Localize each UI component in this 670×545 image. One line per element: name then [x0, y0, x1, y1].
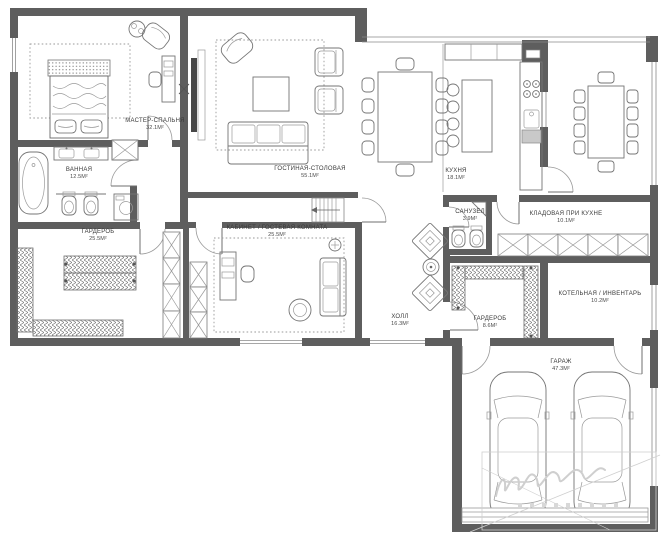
study-furniture	[214, 238, 346, 332]
wardrobe-hall-racks	[452, 266, 538, 338]
dining-table-chairs	[362, 58, 448, 176]
master-bedroom-furniture	[30, 20, 189, 138]
closet-strip-left	[163, 232, 180, 338]
garage-contents	[462, 372, 648, 522]
hall-furniture	[412, 223, 449, 312]
bathroom-fixtures	[19, 140, 138, 220]
stairs	[311, 198, 344, 222]
living-room-furniture	[191, 30, 343, 164]
wardrobe-master-racks	[17, 232, 207, 338]
car-right	[571, 372, 633, 520]
terrace-dining-set	[574, 72, 638, 172]
closet-strip-right	[190, 262, 207, 338]
floor-plan-drawing	[0, 0, 670, 545]
pantry-storage	[498, 234, 648, 256]
garage-door	[462, 508, 648, 522]
kitchen-furniture	[445, 44, 542, 190]
car-left	[487, 372, 549, 520]
floor-plan: МАСТЕР-СПАЛЬНЯ 32.1м² ВАННАЯ 12.5м² ГАРД…	[0, 0, 670, 545]
